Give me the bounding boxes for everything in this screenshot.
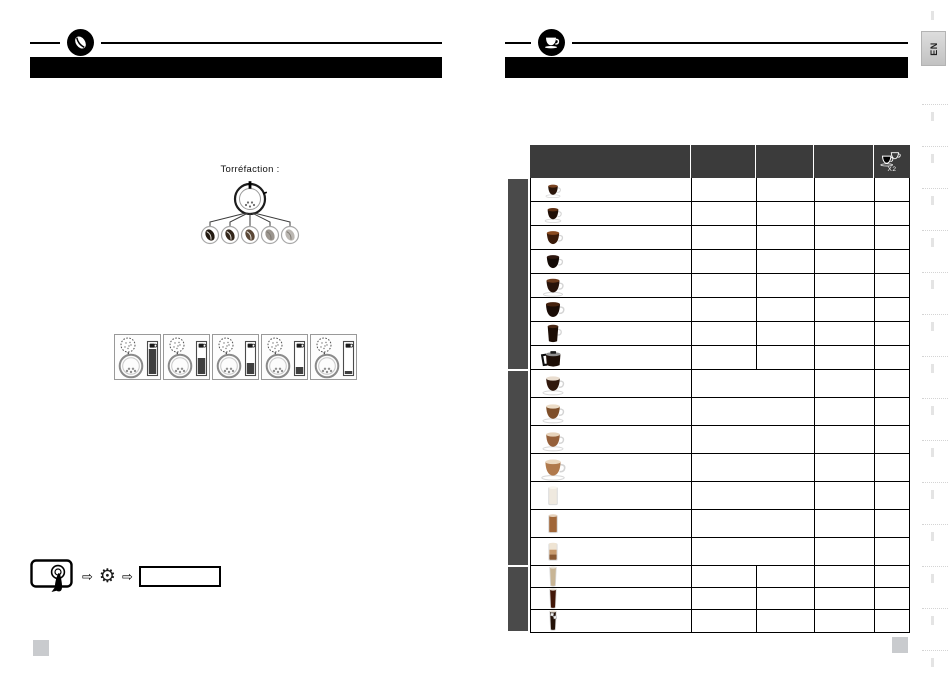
table-cell [875,588,908,609]
drink-icon-cell [531,510,692,537]
drink-icon-cell [531,398,692,425]
coffee-bean-glyph [72,34,89,51]
flat-white-cup-icon [538,399,572,425]
table-cell [875,250,908,273]
coffee-cup-icon [538,29,565,56]
right-page-ornament [505,29,908,56]
table-header-cell [756,145,814,178]
table-cell [815,250,875,273]
roast-level-1-darkest [202,227,219,244]
drink-row [531,202,909,226]
caffe-latte-glass-icon [538,511,572,537]
page-number-box [892,637,908,653]
group-sidebar-iced-recipes [508,567,528,631]
table-cell [875,322,908,345]
roast-selection-diagram: Torréfaction : [163,164,337,256]
drink-icon-cell [531,610,692,632]
drink-row [531,370,909,398]
rail-faint-label [931,616,934,625]
table-cell [875,398,908,425]
rail-separator [922,650,948,651]
table-cell [757,298,815,321]
rail-faint-label [931,574,934,583]
table-cell [875,538,908,565]
roast-level-4-light [262,227,279,244]
table-cell [692,426,815,453]
drink-icon-cell [531,538,692,565]
rail-faint-label [931,406,934,415]
left-section-title-bar [30,57,442,78]
table-cell [815,538,875,565]
rail-separator [922,104,948,105]
table-cell [875,178,908,201]
table-cell [692,178,757,201]
rail-separator [922,314,948,315]
table-cell [815,482,875,509]
coffee-cup-glyph [543,35,561,50]
left-page-ornament [30,29,442,56]
recipes-table: X2 [508,145,912,645]
drink-icon-cell [531,322,692,345]
rail-faint-label [931,658,934,667]
table-header-cell [814,145,874,178]
table-cell [757,250,815,273]
drink-row [531,398,909,426]
drink-row [531,298,909,322]
rail-faint-label [931,196,934,205]
table-cell [815,566,875,587]
coffee-bean-icon [67,29,94,56]
hot-milk-glass-icon [538,483,572,509]
roast-label: Torréfaction : [163,164,337,175]
table-cell [815,178,875,201]
right-section-title-bar [505,57,908,78]
drink-icon-cell [531,298,692,321]
drink-icon-cell [531,370,692,397]
table-cell [875,274,908,297]
language-tab-en[interactable]: EN [921,31,946,66]
menu-item-bar [139,566,221,587]
table-cell [692,250,757,273]
drink-row [531,538,909,566]
table-cell [692,298,757,321]
long-coffee-cup-icon [538,297,572,323]
cappuccino-cup-icon [538,371,572,397]
table-cell [757,226,815,249]
grind-setting-2-glyph [164,335,209,379]
rail-faint-label [931,322,934,331]
ornament-line [101,42,442,44]
table-cell [692,398,815,425]
table-cell [875,482,908,509]
drink-row [531,346,909,370]
rail-separator [922,230,948,231]
drink-icon-cell [531,202,692,225]
grind-setting-4 [261,334,308,380]
grind-settings-row [114,334,357,380]
rail-separator [922,524,948,525]
table-cell [875,202,908,225]
rail-faint-label [931,112,934,121]
page-number-box [33,640,49,656]
manual-spread: Torréfaction : ⇨ ⚙ ⇨ X2 [0,0,950,674]
drink-row [531,322,909,346]
table-cell [815,426,875,453]
table-cell [875,370,908,397]
drink-row [531,250,909,274]
drink-icon-cell [531,178,692,201]
rail-separator [922,398,948,399]
table-header-cell: X2 [874,145,910,178]
iced-americano-glass-icon [538,608,572,634]
table-cell [815,226,875,249]
rail-faint-label [931,238,934,247]
table-cell [692,202,757,225]
grind-setting-1 [114,334,161,380]
drink-icon-cell [531,250,692,273]
ristretto-cup-icon [538,177,572,203]
drink-icon-cell [531,226,692,249]
grind-setting-5 [310,334,357,380]
table-cell [875,454,908,481]
table-cell [875,610,908,632]
rail-separator [922,272,948,273]
table-cell [757,274,815,297]
table-cell [815,398,875,425]
drink-row [531,426,909,454]
drink-row [531,226,909,250]
drink-row [531,610,909,632]
rail-separator [922,482,948,483]
rail-separator [922,608,948,609]
drink-icon-cell [531,588,692,609]
espresso-cup-icon [538,201,572,227]
grind-setting-1-glyph [115,335,160,379]
rail-separator [922,188,948,189]
drink-row [531,178,909,202]
grind-setting-3 [212,334,259,380]
ornament-line [572,42,908,44]
table-cell [815,322,875,345]
table-cell [815,588,875,609]
table-cell [692,538,815,565]
table-cell [692,370,815,397]
table-cell [692,610,757,632]
rail-separator [922,146,948,147]
roast-dial-diagram [163,175,337,251]
drink-icon-cell [531,454,692,481]
table-cell [875,298,908,321]
table-cell [692,346,757,369]
ornament-line [30,42,60,44]
grind-setting-5-glyph [311,335,356,379]
grind-setting-3-glyph [213,335,258,379]
table-cell [815,370,875,397]
caffe-latte-cup-icon [538,427,572,453]
table-cell [815,202,875,225]
rail-faint-label [931,532,934,541]
drink-row [531,274,909,298]
roast-level-2-dark [222,227,239,244]
table-cell [757,322,815,345]
table-cell [815,510,875,537]
table-body [530,178,910,633]
table-cell [757,566,815,587]
table-cell [815,298,875,321]
table-cell [757,588,815,609]
table-cell [692,482,815,509]
double-cup-icon [880,150,904,167]
table-cell [875,510,908,537]
gear-icon: ⚙ [99,567,116,586]
rail-separator [922,566,948,567]
table-cell [875,226,908,249]
drink-row [531,482,909,510]
tall-mug-icon [538,321,572,347]
drink-icon-cell [531,482,692,509]
table-cell [875,346,908,369]
grind-setting-4-glyph [262,335,307,379]
arrow-right-icon: ⇨ [82,570,93,583]
rail-faint-label [931,490,934,499]
table-cell [815,346,875,369]
drink-row [531,454,909,482]
latte-macchiato-cup-icon [538,455,572,481]
coffee-pot-icon [538,345,572,371]
roast-level-3-medium [242,227,259,244]
rail-separator [922,356,948,357]
drink-row [531,566,909,588]
roast-level-5-lightest [282,227,299,244]
language-tab-label: EN [928,42,938,56]
table-cell [875,426,908,453]
doppio-cup-icon [538,249,572,275]
lungo-cup-icon [538,225,572,251]
drink-icon-cell [531,566,692,587]
table-cell [692,566,757,587]
table-cell [757,202,815,225]
group-sidebar-black-coffee-recipes [508,179,528,369]
table-header-cell [530,145,691,178]
rail-faint-label [931,280,934,289]
table-cell [815,454,875,481]
rail-faint-label [931,448,934,457]
rail-faint-label [931,11,934,20]
table-cell [692,226,757,249]
drink-icon-cell [531,274,692,297]
table-cell [757,346,815,369]
table-cell [692,274,757,297]
table-cell [757,178,815,201]
table-header-row: X2 [530,145,910,178]
coffee-cup-saucer-icon [538,273,572,299]
table-cell [692,454,815,481]
grind-setting-2 [163,334,210,380]
drink-icon-cell [531,346,692,369]
table-cell [692,510,815,537]
rail-faint-label [931,154,934,163]
table-cell [692,588,757,609]
drink-icon-cell [531,426,692,453]
settings-access-sequence: ⇨ ⚙ ⇨ [30,557,221,595]
layered-macchiato-glass-icon [538,539,572,565]
drink-row [531,510,909,538]
touchscreen-icon [30,559,76,593]
table-cell [815,274,875,297]
group-sidebar-milk-coffee-recipes [508,371,528,565]
drink-row [531,588,909,610]
table-cell [757,610,815,632]
table-header-cell [691,145,756,178]
table-cell [692,322,757,345]
rail-separator [922,440,948,441]
x2-column-label: X2 [888,166,897,173]
ornament-line [505,42,531,44]
table-cell [875,566,908,587]
table-cell [815,610,875,632]
rail-faint-label [931,364,934,373]
arrow-right-icon: ⇨ [122,570,133,583]
